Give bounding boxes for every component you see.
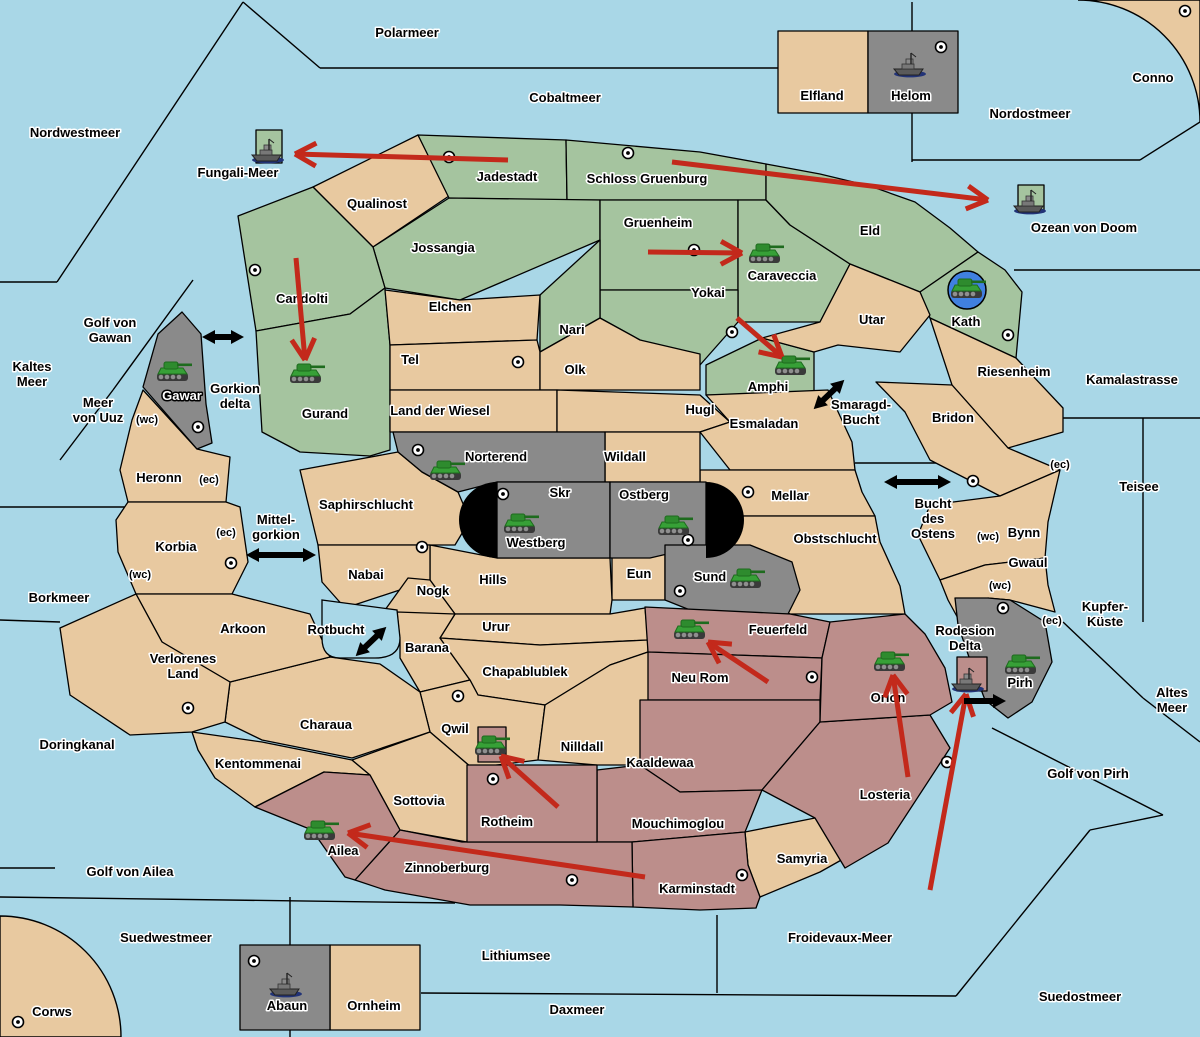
sea-label-altes-meer: AltesMeer: [1156, 685, 1188, 715]
tank-turret-icon: [958, 279, 972, 286]
city-dot-center: [456, 694, 460, 698]
tank-wheel-icon: [512, 527, 517, 532]
tank-wheel-icon: [1025, 668, 1030, 673]
ship-bridge-icon: [1026, 196, 1033, 201]
tank-barrel-icon: [324, 823, 339, 826]
tank-wheel-icon: [676, 633, 681, 638]
territory-label-pirh: Pirh: [1007, 675, 1032, 690]
city-dot-center: [810, 675, 814, 679]
territory-label-eun: Eun: [627, 566, 652, 581]
tank-barrel-icon: [524, 516, 539, 519]
tank-wheel-icon: [751, 257, 756, 262]
sea-label-kaltes-meer: KaltesMeer: [12, 359, 51, 389]
city-dot: [193, 422, 204, 433]
territory-label-gwaul: Gwaul: [1008, 555, 1047, 570]
territory-label-barana: Barana: [405, 640, 450, 655]
territory-label-caraveccia: Caraveccia: [748, 268, 817, 283]
sea-label-cobaltmeer: Cobaltmeer: [529, 90, 601, 105]
tank-wheel-icon: [678, 529, 683, 534]
tank-wheel-icon: [777, 369, 782, 374]
territory-label-kaaldewaa: Kaaldewaa: [626, 755, 694, 770]
ship-hull-icon: [252, 155, 281, 161]
city-dot-center: [570, 878, 574, 882]
city-dot-center: [1006, 333, 1010, 337]
tank-wheel-icon: [489, 749, 494, 754]
sea-label-doringkanal: Doringkanal: [39, 737, 114, 752]
tank-wheel-icon: [298, 377, 303, 382]
tank-barrel-icon: [495, 738, 510, 741]
tank-wheel-icon: [738, 582, 743, 587]
territory-label-charaua: Charaua: [300, 717, 353, 732]
tank-wheel-icon: [894, 665, 899, 670]
territory-label-mellar: Mellar: [771, 488, 809, 503]
tank-wheel-icon: [789, 369, 794, 374]
ship-bridge-icon: [282, 979, 289, 984]
tank-turret-icon: [737, 569, 751, 576]
territory-label-feuerfeld: Feuerfeld: [749, 622, 808, 637]
sea-label-suedostmeer: Suedostmeer: [1039, 989, 1121, 1004]
tank-wheel-icon: [306, 834, 311, 839]
territory-label-ornheim: Ornheim: [347, 998, 400, 1013]
tank-wheel-icon: [324, 834, 329, 839]
city-dot: [226, 558, 237, 569]
city-dot-center: [730, 330, 734, 334]
territory-label-nilldall: Nilldall: [561, 739, 604, 754]
city-dot: [413, 445, 424, 456]
sea-label-nordwestmeer: Nordwestmeer: [30, 125, 120, 140]
city-dot-center: [1001, 606, 1005, 610]
city-dot-center: [686, 538, 690, 542]
coast-marker-label: (ec): [1050, 459, 1070, 471]
city-dot-center: [416, 448, 420, 452]
arrow-shaft: [648, 252, 742, 253]
tank-turret-icon: [681, 620, 695, 627]
territory-label-neu-rom: Neu Rom: [671, 670, 728, 685]
territory-label-nogk: Nogk: [417, 583, 450, 598]
tank-wheel-icon: [171, 375, 176, 380]
territory-label-esmaladan: Esmaladan: [730, 416, 799, 431]
coast-marker-label: (wc): [129, 569, 151, 581]
territory-label-heronn: Heronn: [136, 470, 182, 485]
tank-wheel-icon: [483, 749, 488, 754]
territory-label-qualinost: Qualinost: [347, 196, 408, 211]
tank-wheel-icon: [688, 633, 693, 638]
territory-label-bynn: Bynn: [1008, 525, 1041, 540]
territory-label-bridon: Bridon: [932, 410, 974, 425]
territory-rotheim[interactable]: [467, 765, 597, 842]
tank-wheel-icon: [694, 633, 699, 638]
tank-barrel-icon: [971, 281, 986, 284]
territory-label-jadestadt: Jadestadt: [477, 169, 538, 184]
tank-wheel-icon: [971, 292, 976, 297]
tank-wheel-icon: [757, 257, 762, 262]
city-dot: [250, 265, 261, 276]
city-dot: [737, 870, 748, 881]
tank-wheel-icon: [672, 529, 677, 534]
territory-label-tel: Tel: [401, 352, 419, 367]
territory-label-hugl: Hugl: [686, 402, 715, 417]
tank-wheel-icon: [444, 474, 449, 479]
tank-wheel-icon: [1013, 668, 1018, 673]
city-dot-center: [740, 873, 744, 877]
city-dot: [249, 956, 260, 967]
tank-wheel-icon: [432, 474, 437, 479]
territory-ornheim[interactable]: [330, 945, 420, 1030]
tank-turret-icon: [1012, 655, 1026, 662]
tank-barrel-icon: [1025, 657, 1040, 660]
city-dot: [1180, 6, 1191, 17]
city-dot-center: [939, 45, 943, 49]
territory-label-yokai: Yokai: [691, 285, 725, 300]
sea-label-kamalastrasse: Kamalastrasse: [1086, 372, 1178, 387]
sea-label-golf-von-ailea: Golf von Ailea: [87, 864, 175, 879]
territory-label-kath: Kath: [952, 314, 981, 329]
tank-wheel-icon: [318, 834, 323, 839]
territory-label-rotheim: Rotheim: [481, 814, 533, 829]
tank-wheel-icon: [495, 749, 500, 754]
sea-label-suedwestmeer: Suedwestmeer: [120, 930, 212, 945]
coast-marker-label: (ec): [1042, 615, 1062, 627]
territory-label-land-der-wiesel: Land der Wiesel: [390, 403, 490, 418]
tank-wheel-icon: [882, 665, 887, 670]
territory-label-hills: Hills: [479, 572, 506, 587]
city-dot: [417, 542, 428, 553]
city-dot: [513, 357, 524, 368]
sea-label-golf-von-pirh: Golf von Pirh: [1047, 766, 1129, 781]
city-dot: [675, 586, 686, 597]
sea-label-nordostmeer: Nordostmeer: [990, 106, 1071, 121]
territory-urur[interactable]: [440, 608, 648, 645]
tank-wheel-icon: [660, 529, 665, 534]
territory-label-westberg: Westberg: [507, 535, 566, 550]
city-dot: [488, 774, 499, 785]
territory-gruenheim[interactable]: [600, 200, 738, 290]
coast-marker-label: (wc): [136, 414, 158, 426]
city-dot-center: [253, 268, 257, 272]
city-dot: [13, 1017, 24, 1028]
sea-label-borkmeer: Borkmeer: [29, 590, 90, 605]
territory-label-losteria: Losteria: [860, 787, 911, 802]
tank-wheel-icon: [953, 292, 958, 297]
tank-wheel-icon: [450, 474, 455, 479]
tank-wheel-icon: [959, 292, 964, 297]
sea-label-froidevaux-meer: Froidevaux-Meer: [788, 930, 892, 945]
territory-label-obstschlucht: Obstschlucht: [793, 531, 877, 546]
tank-turret-icon: [437, 461, 451, 468]
tank-wheel-icon: [438, 474, 443, 479]
tank-wheel-icon: [310, 377, 315, 382]
territory-label-abaun: Abaun: [267, 998, 308, 1013]
sea-label-kupfer-k-ste: Kupfer-Küste: [1082, 599, 1128, 629]
tank-turret-icon: [297, 364, 311, 371]
city-dot: [453, 691, 464, 702]
tank-barrel-icon: [310, 366, 325, 369]
tank-barrel-icon: [769, 246, 784, 249]
tank-wheel-icon: [795, 369, 800, 374]
ship-deck-icon: [278, 984, 290, 989]
territory-label-arkoon: Arkoon: [220, 621, 266, 636]
tank-wheel-icon: [518, 527, 523, 532]
tank-wheel-icon: [763, 257, 768, 262]
city-dot-center: [516, 360, 520, 364]
territory-label-gawar: Gawar: [162, 388, 202, 403]
tank-wheel-icon: [666, 529, 671, 534]
city-dot: [623, 148, 634, 159]
territory-label-samyria: Samyria: [777, 851, 828, 866]
city-dot-center: [1183, 9, 1187, 13]
sea-label-ozean-von-doom: Ozean von Doom: [1031, 220, 1137, 235]
sea-label-teisee: Teisee: [1119, 479, 1159, 494]
tank-wheel-icon: [876, 665, 881, 670]
coast-marker-label: (wc): [989, 580, 1011, 592]
city-dot-center: [971, 479, 975, 483]
sea-label-fungali-meer: Fungali-Meer: [198, 165, 279, 180]
sea-label-daxmeer: Daxmeer: [550, 1002, 605, 1017]
territory-label-olk: Olk: [565, 362, 587, 377]
territory-label-utar: Utar: [859, 312, 885, 327]
tank-wheel-icon: [769, 257, 774, 262]
territory-label-elchen: Elchen: [429, 299, 472, 314]
ship-bridge-icon: [264, 145, 271, 150]
tank-wheel-icon: [1007, 668, 1012, 673]
city-dot: [567, 875, 578, 886]
territory-label-helom: Helom: [891, 88, 931, 103]
city-dot: [998, 603, 1009, 614]
tank-wheel-icon: [1019, 668, 1024, 673]
city-dot-center: [252, 959, 256, 963]
sea-label-golf-von-gawan: Golf vonGawan: [84, 315, 137, 345]
tank-turret-icon: [311, 821, 325, 828]
territory-label-ailea: Ailea: [327, 843, 359, 858]
territory-label-nabai: Nabai: [348, 567, 383, 582]
ship-hull-icon: [952, 684, 981, 690]
tank-wheel-icon: [682, 633, 687, 638]
tank-wheel-icon: [744, 582, 749, 587]
sea-label-conno: Conno: [1132, 70, 1173, 85]
territory-label-sottovia: Sottovia: [393, 793, 445, 808]
city-dot: [968, 476, 979, 487]
territory-label-elfland: Elfland: [800, 88, 843, 103]
territory-label-jossangia: Jossangia: [411, 240, 475, 255]
coast-marker-label: (wc): [977, 531, 999, 543]
sea-label-rotbucht: Rotbucht: [307, 622, 365, 637]
city-dot-center: [420, 545, 424, 549]
territory-label-saphirschlucht: Saphirschlucht: [319, 497, 414, 512]
city-dot-center: [945, 760, 949, 764]
tank-barrel-icon: [750, 571, 765, 574]
territory-label-gurand: Gurand: [302, 406, 348, 421]
city-dot: [727, 327, 738, 338]
tank-wheel-icon: [177, 375, 182, 380]
tank-wheel-icon: [524, 527, 529, 532]
tank-wheel-icon: [165, 375, 170, 380]
tank-wheel-icon: [477, 749, 482, 754]
ship-hull-icon: [270, 989, 299, 995]
territory-label-schloss-gruenburg: Schloss Gruenburg: [587, 171, 708, 186]
territory-label-chapablublek: Chapablublek: [482, 664, 568, 679]
sea-label-corws: Corws: [32, 1004, 72, 1019]
tank-turret-icon: [164, 362, 178, 369]
territory-label-zinnoberburg: Zinnoberburg: [405, 860, 490, 875]
tank-barrel-icon: [694, 622, 709, 625]
ship-bridge-icon: [964, 674, 971, 679]
territory-label-gruenheim: Gruenheim: [624, 215, 693, 230]
territory-label-norterend: Norterend: [465, 449, 527, 464]
tank-turret-icon: [511, 514, 525, 521]
city-dot: [183, 703, 194, 714]
territory-label-mouchimoglou: Mouchimoglou: [632, 816, 724, 831]
tank-barrel-icon: [894, 654, 909, 657]
tank-barrel-icon: [177, 364, 192, 367]
city-dot: [936, 42, 947, 53]
ship-hull-icon: [1014, 206, 1043, 212]
territory-label-karminstadt: Karminstadt: [659, 881, 736, 896]
tank-wheel-icon: [292, 377, 297, 382]
city-dot-center: [626, 151, 630, 155]
sea-label-polarmeer: Polarmeer: [375, 25, 439, 40]
city-dot-center: [196, 425, 200, 429]
tank-wheel-icon: [888, 665, 893, 670]
tank-turret-icon: [782, 356, 796, 363]
tank-turret-icon: [881, 652, 895, 659]
tank-wheel-icon: [750, 582, 755, 587]
tank-wheel-icon: [965, 292, 970, 297]
tank-wheel-icon: [506, 527, 511, 532]
tank-wheel-icon: [732, 582, 737, 587]
city-dot-center: [186, 706, 190, 710]
ship-deck-icon: [1022, 201, 1034, 206]
ship-hull-icon: [894, 69, 923, 75]
territory-label-korbia: Korbia: [155, 539, 197, 554]
territory-label-eld: Eld: [860, 223, 880, 238]
tank-wheel-icon: [312, 834, 317, 839]
city-dot: [743, 487, 754, 498]
city-dot: [683, 535, 694, 546]
tank-wheel-icon: [783, 369, 788, 374]
territory-label-ostberg: Ostberg: [619, 487, 669, 502]
city-dot: [498, 489, 509, 500]
tank-barrel-icon: [678, 518, 693, 521]
ship-deck-icon: [960, 679, 972, 684]
city-dot-center: [501, 492, 505, 496]
city-dot: [1003, 330, 1014, 341]
tank-turret-icon: [665, 516, 679, 523]
tank-turret-icon: [756, 244, 770, 251]
territory-label-nari: Nari: [559, 322, 584, 337]
city-dot-center: [16, 1020, 20, 1024]
territory-label-qwil: Qwil: [441, 721, 468, 736]
city-dot-center: [491, 777, 495, 781]
city-dot-center: [229, 561, 233, 565]
territory-label-wildall: Wildall: [604, 449, 646, 464]
sea-label-lithiumsee: Lithiumsee: [482, 948, 551, 963]
territory-label-urur: Urur: [482, 619, 509, 634]
territory-label-kentommenai: Kentommenai: [215, 756, 301, 771]
ship-deck-icon: [902, 64, 914, 69]
sea-label-mittel-gorkion: Mittel-gorkion: [252, 512, 300, 542]
tank-barrel-icon: [450, 463, 465, 466]
territory-label-skr: Skr: [550, 485, 571, 500]
territory-label-sund: Sund: [694, 569, 727, 584]
city-dot-center: [678, 589, 682, 593]
ship-bridge-icon: [906, 59, 913, 64]
tank-wheel-icon: [159, 375, 164, 380]
territory-label-amphi: Amphi: [748, 379, 788, 394]
tank-turret-icon: [482, 736, 496, 743]
coast-marker-label: (ec): [199, 474, 219, 486]
tank-barrel-icon: [795, 358, 810, 361]
coast-marker-label: (ec): [216, 527, 236, 539]
city-dot: [807, 672, 818, 683]
territory-label-riesenheim: Riesenheim: [978, 364, 1051, 379]
game-map: QualinostJadestadtSchloss GruenburgJossa…: [0, 0, 1200, 1037]
city-dot-center: [746, 490, 750, 494]
ship-deck-icon: [260, 150, 272, 155]
tank-wheel-icon: [304, 377, 309, 382]
